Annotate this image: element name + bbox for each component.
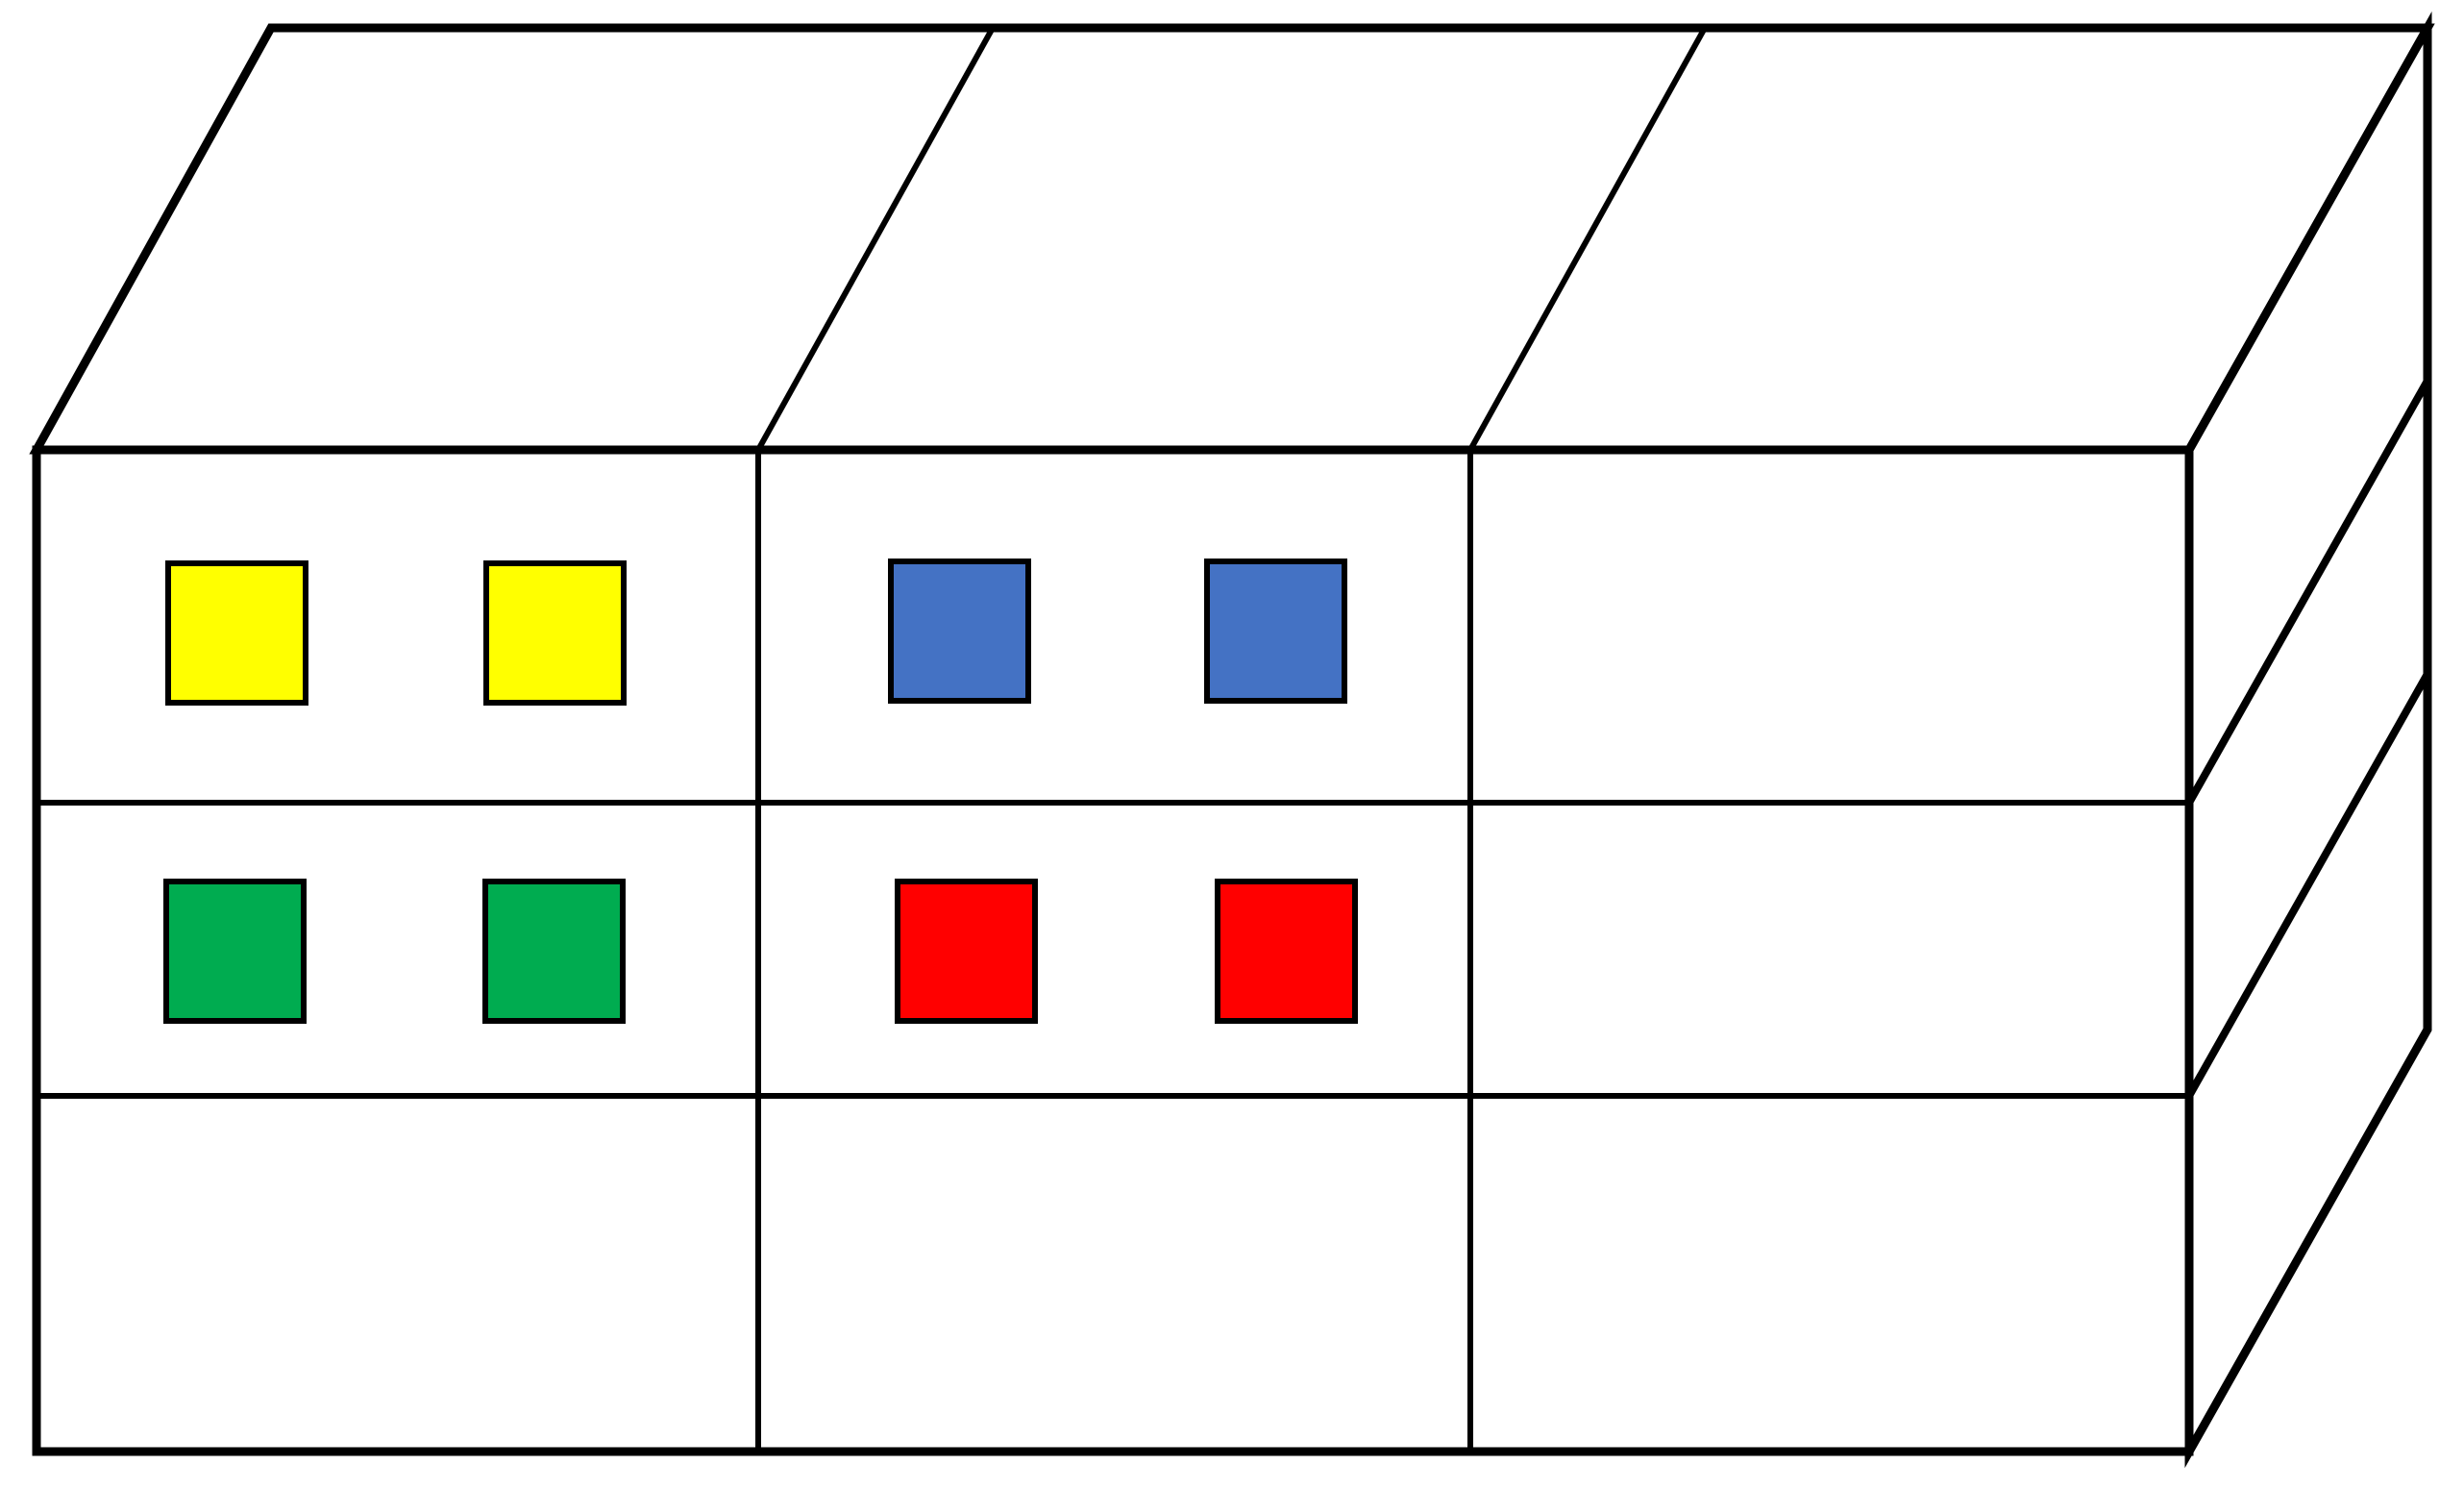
box-diagram [0, 0, 2464, 1490]
square-green-2 [485, 882, 623, 1021]
square-green-1 [166, 882, 304, 1021]
square-yellow-2 [486, 563, 624, 703]
top-face [37, 28, 2427, 450]
square-blue-1 [891, 561, 1028, 701]
square-red-1 [898, 882, 1035, 1021]
square-blue-2 [1207, 561, 1344, 701]
square-red-2 [1218, 882, 1355, 1021]
diagram-stage [0, 0, 2464, 1490]
square-yellow-1 [168, 563, 306, 703]
front-face [37, 450, 2189, 1452]
faces-layer [37, 28, 2427, 1452]
